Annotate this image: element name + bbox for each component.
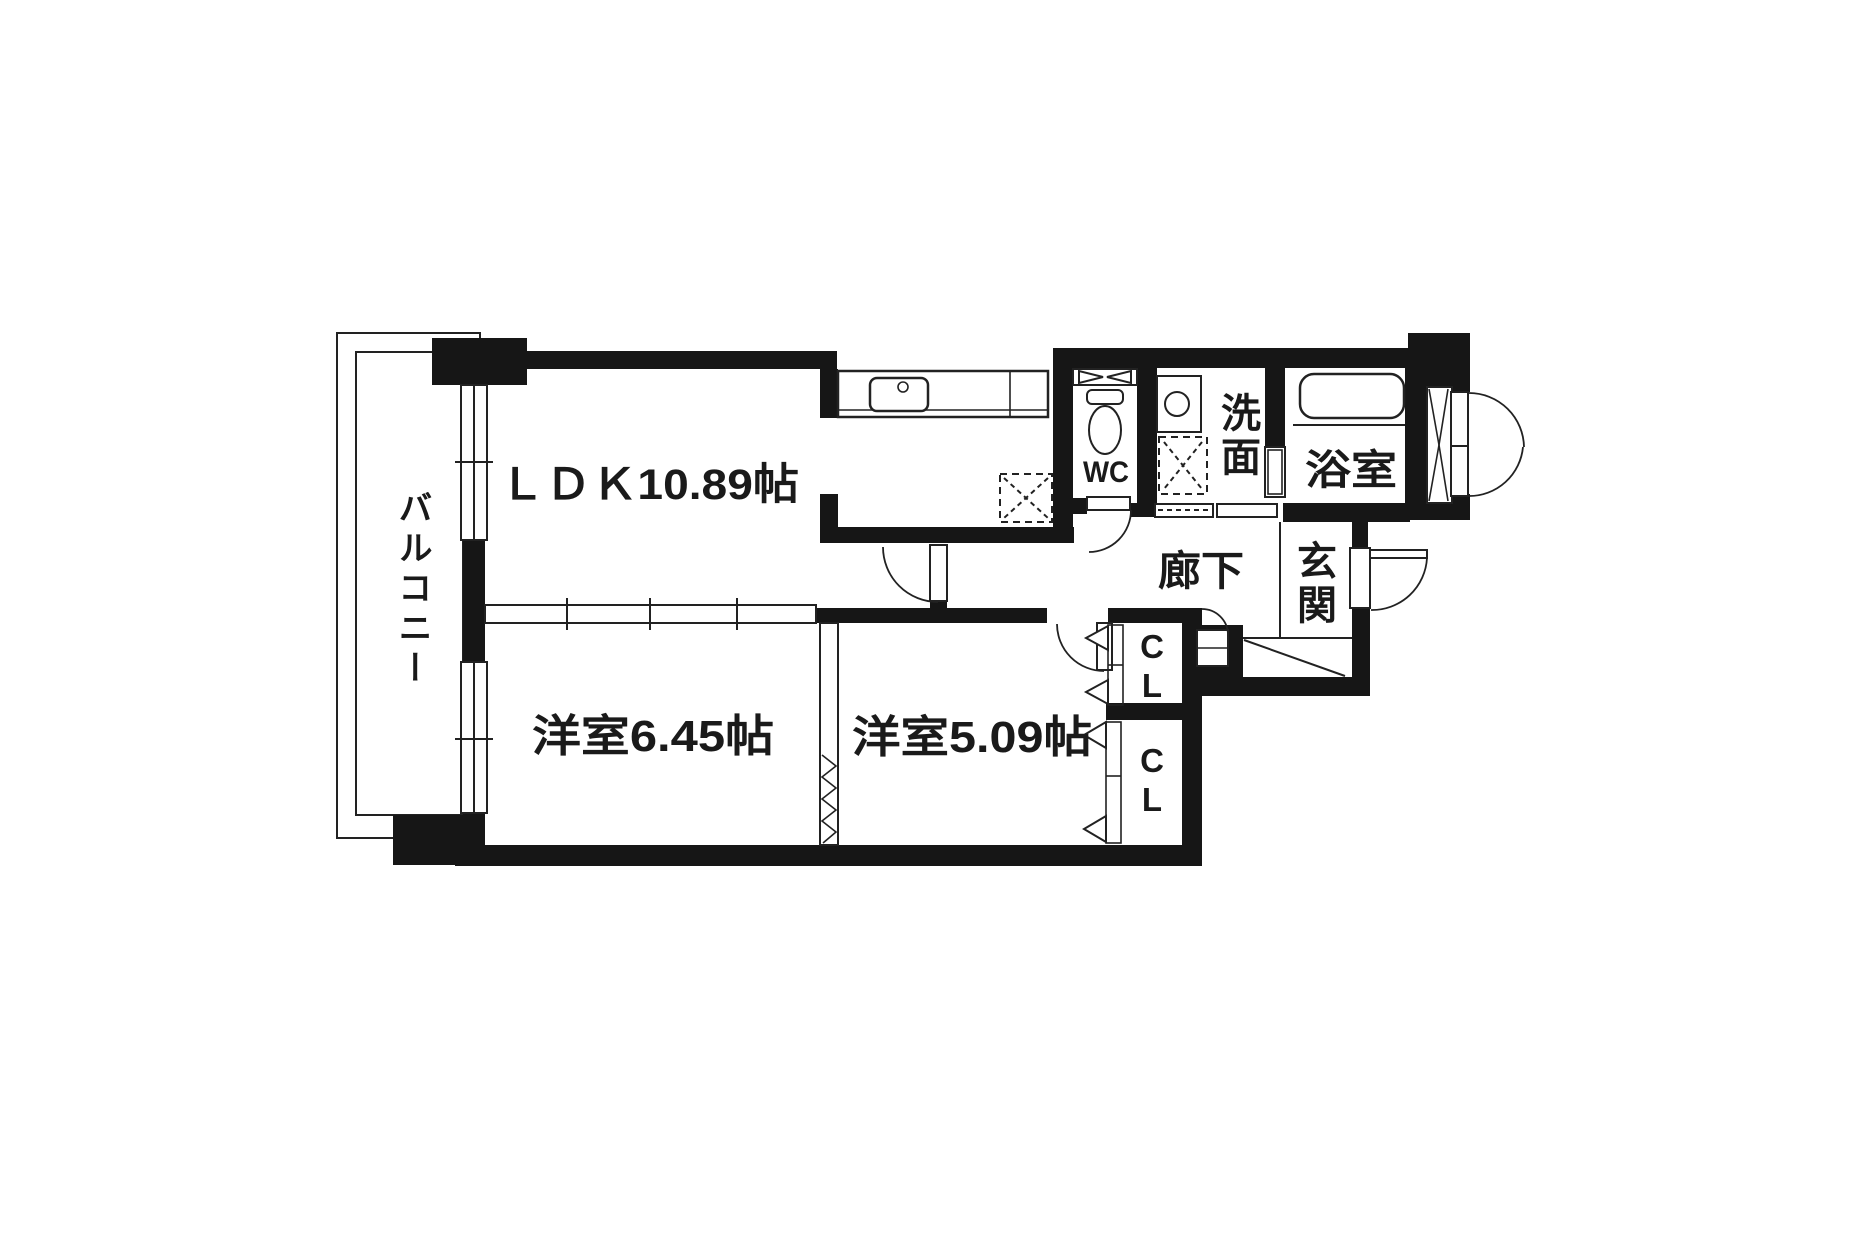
kitchen xyxy=(838,371,1052,522)
label-ldk: ＬＤＫ10.89帖 xyxy=(499,461,799,509)
bedroom-partition-channel xyxy=(820,623,838,845)
label-bedroom1: 洋室6.45帖 xyxy=(532,711,774,761)
toilet-room xyxy=(1073,369,1137,454)
label-hallway: 廊下 xyxy=(1158,548,1244,594)
label-entrance: 玄関 xyxy=(1291,540,1336,628)
entrance-door-arc xyxy=(1371,558,1427,610)
wc-door-leaf xyxy=(1087,497,1130,510)
refrigerator-cross-2 xyxy=(1004,478,1048,518)
floor-plan-canvas: バルコニー ＬＤＫ10.89帖 洋室6.45帖 洋室5.09帖 WC 洗面 浴室… xyxy=(0,0,1850,1233)
entrance-door-opening xyxy=(1350,548,1370,608)
shaft-door-arc-top xyxy=(1469,393,1524,447)
label-closet-top: CL xyxy=(1134,628,1171,706)
label-bedroom2: 洋室5.09帖 xyxy=(852,712,1092,762)
closet-bottom-fold-2 xyxy=(1084,816,1106,842)
toilet-tank-icon xyxy=(1087,390,1123,404)
shaft-door-arc-bottom xyxy=(1469,447,1523,496)
toilet-bowl-icon xyxy=(1089,406,1121,454)
pipe-shaft xyxy=(1427,387,1524,503)
ldk-door-leaf xyxy=(930,545,947,601)
floor-plan: バルコニー ＬＤＫ10.89帖 洋室6.45帖 洋室5.09帖 WC 洗面 浴室… xyxy=(0,0,1850,1233)
closet-top-fold-2 xyxy=(1086,680,1108,704)
wc-door-arc xyxy=(1089,510,1131,552)
shaft-door-leaf-bottom xyxy=(1451,446,1468,496)
shaft-door-leaf-top xyxy=(1451,392,1468,446)
ldk-partition xyxy=(485,598,816,630)
bathtub-icon xyxy=(1300,374,1404,418)
vanity-icon xyxy=(1157,376,1201,432)
label-balcony: バルコニー xyxy=(393,490,431,690)
washroom-threshold-2 xyxy=(1217,504,1277,517)
label-closet-bottom: CL xyxy=(1134,742,1171,820)
label-bathroom: 浴室 xyxy=(1305,447,1397,493)
label-washroom: 洗面 xyxy=(1215,392,1261,480)
bedroom-partition xyxy=(820,623,838,845)
closet-bottom-panel xyxy=(1106,722,1121,843)
entrance-door-leaf xyxy=(1370,550,1427,558)
entrance-diagonal xyxy=(1244,640,1345,676)
label-wc: WC xyxy=(1083,456,1129,489)
